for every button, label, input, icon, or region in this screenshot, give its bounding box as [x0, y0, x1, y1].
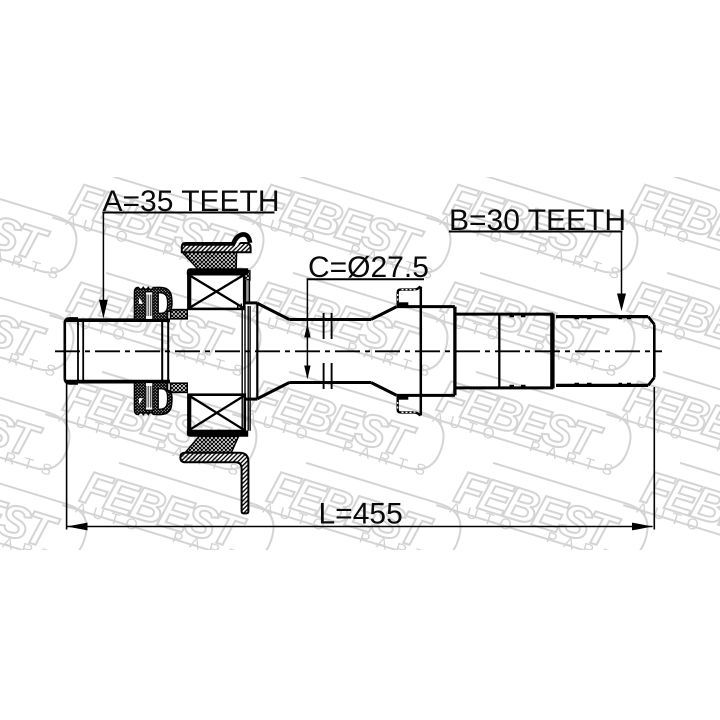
- svg-text:L=455: L=455: [319, 498, 403, 531]
